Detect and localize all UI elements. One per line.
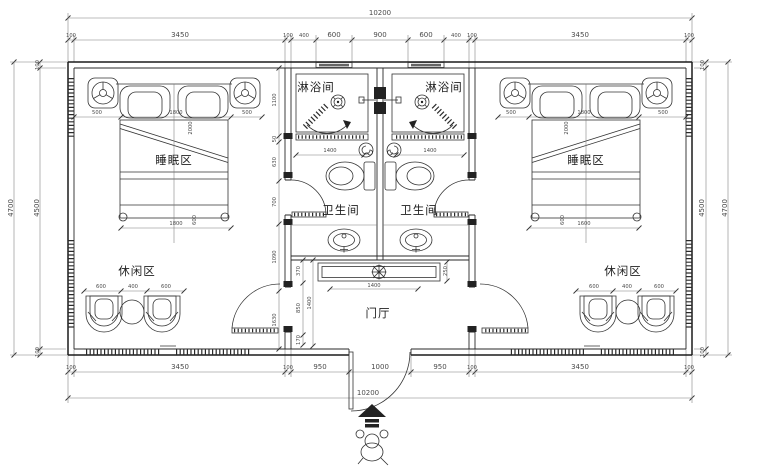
dim-bottom-3: 950 [313, 363, 326, 371]
dim-bottom-8: 100 [684, 365, 694, 371]
dim-top-8: 100 [467, 33, 477, 39]
ceiling-light-icon [88, 78, 118, 108]
toilet [385, 162, 434, 190]
armchair [86, 296, 122, 332]
dim-chain-2: 630 [272, 157, 278, 167]
toilet-door [434, 180, 469, 217]
wash-basin [383, 225, 469, 253]
dim-chain-0: 1100 [272, 93, 278, 106]
floor-plan-page: 10200 100 3450 100 400 600 900 600 400 1… [0, 0, 760, 473]
dim-cabinet-depth: 250 [443, 266, 449, 276]
entrance-door [349, 352, 410, 411]
toilet-door [291, 180, 326, 217]
dim-top-6: 600 [419, 31, 432, 39]
dim-bed-right-bottom: 1600 [577, 221, 590, 227]
dim-bottom-overall: 10200 [357, 389, 379, 397]
side-table [616, 300, 640, 324]
dim-bed-left-1: 1800 [169, 110, 182, 116]
dim-bed-left-2: 500 [242, 110, 252, 116]
dim-bottom-2: 100 [283, 365, 293, 371]
dim-chairs-right-1: 400 [622, 284, 632, 290]
dim-right-outer: 4700 [721, 199, 729, 217]
dim-right-wall-top: 100 [700, 60, 706, 70]
annotations: 10200 100 3450 100 400 600 900 600 400 1… [7, 9, 729, 397]
dim-cabinet-width: 1400 [367, 283, 380, 289]
label-shower-left: 淋浴间 [297, 80, 335, 94]
dim-top-7: 400 [451, 33, 461, 39]
dim-chairs-right-2: 600 [654, 284, 664, 290]
floor-plan-drawing: 10200 100 3450 100 400 600 900 600 400 1… [0, 0, 760, 473]
label-leisure-left: 休闲区 [118, 264, 156, 278]
dim-top-overall: 10200 [369, 9, 391, 17]
dim-toilet-left: 1400 [323, 148, 336, 154]
dim-bed-right-0: 500 [506, 110, 516, 116]
label-sleep-right: 睡眠区 [567, 153, 605, 167]
dim-top-5: 900 [373, 31, 386, 39]
armchair [580, 296, 616, 332]
dimension-lines [10, 13, 732, 403]
dim-chain-5: 1630 [272, 313, 278, 326]
faucet-icon [414, 234, 418, 238]
shower-door [433, 105, 455, 127]
plumbing-shaft-block [374, 87, 386, 99]
dim-foyer-height: 1400 [307, 296, 313, 309]
dim-top-0: 100 [66, 33, 76, 39]
dim-left-outer: 4700 [7, 199, 15, 217]
dim-bottom-4: 1000 [371, 363, 389, 371]
entrance-arrow-icon [358, 404, 386, 428]
faucet-icon [342, 234, 346, 238]
dim-right-inner: 4500 [698, 199, 706, 217]
dim-chain-3: 700 [272, 197, 278, 207]
window-top [408, 63, 444, 68]
dim-chairs-left-2: 600 [161, 284, 171, 290]
armchair [144, 296, 180, 332]
drain-spiral-icon [359, 143, 373, 157]
dim-top-4: 600 [327, 31, 340, 39]
room-door [480, 284, 528, 333]
dim-foyer-chain-2: 170 [296, 335, 302, 345]
toilet [326, 162, 375, 190]
dim-chairs-right-0: 600 [589, 284, 599, 290]
label-toilet-right: 卫生间 [400, 203, 438, 217]
dim-top-9: 3450 [571, 31, 589, 39]
armchair [638, 296, 674, 332]
dim-chairs-left-0: 600 [96, 284, 106, 290]
label-leisure-right: 休闲区 [604, 264, 642, 278]
dim-chain-1: 50 [272, 136, 278, 143]
dim-bed-right-width: 600 [560, 215, 566, 225]
dim-left-wall-top: 100 [35, 60, 41, 70]
dim-chain-4: 1090 [272, 250, 278, 263]
dim-bed-left-0: 500 [92, 110, 102, 116]
dim-bottom-5: 950 [433, 363, 446, 371]
label-shower-right: 淋浴间 [425, 80, 463, 94]
dim-bottom-1: 3450 [171, 363, 189, 371]
dim-bed-right-2: 500 [658, 110, 668, 116]
dim-top-10: 100 [684, 33, 694, 39]
dim-bottom-6: 100 [467, 365, 477, 371]
dim-top-2: 100 [283, 33, 293, 39]
person-figure [356, 430, 388, 465]
ceiling-fan-icon [372, 265, 387, 280]
dim-top-3: 400 [299, 33, 309, 39]
dim-toilet-right: 1400 [423, 148, 436, 154]
dim-bed-left-width: 600 [192, 215, 198, 225]
dim-top-1: 3450 [171, 31, 189, 39]
dim-left-wall-bottom: 100 [35, 347, 41, 357]
dim-bed-left-length: 2000 [188, 121, 194, 134]
dim-bed-left-bottom: 1800 [169, 221, 182, 227]
label-sleep-left: 睡眠区 [155, 153, 193, 167]
dim-left-inner: 4500 [33, 199, 41, 217]
dim-bottom-0: 100 [66, 365, 76, 371]
dim-foyer-chain-1: 850 [296, 303, 302, 313]
drain-spiral-icon [387, 143, 401, 157]
dim-bed-right-length: 2000 [564, 121, 570, 134]
side-table [120, 300, 144, 324]
window-top [316, 63, 352, 68]
label-foyer: 门厅 [366, 306, 391, 320]
plumbing-shaft-block [374, 102, 386, 114]
dim-bed-right-1: 1800 [577, 110, 590, 116]
dim-bottom-7: 3450 [571, 363, 589, 371]
dim-right-wall-bottom: 100 [700, 347, 706, 357]
ceiling-light-icon [642, 78, 672, 108]
wash-basin [291, 225, 377, 253]
dim-chairs-left-1: 400 [128, 284, 138, 290]
label-toilet-left: 卫生间 [322, 203, 360, 217]
ceiling-light-icon [500, 78, 530, 108]
dim-foyer-chain-0: 370 [296, 266, 302, 276]
shower-door [305, 105, 327, 127]
ceiling-light-icon [230, 78, 260, 108]
